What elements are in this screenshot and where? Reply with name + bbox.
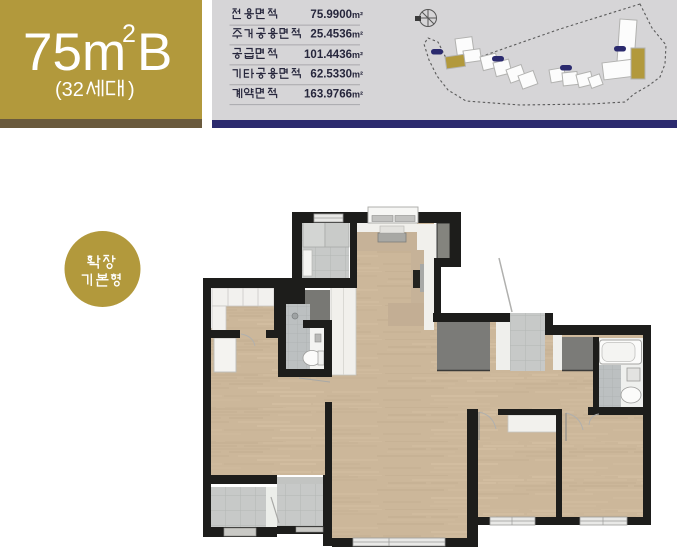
svg-text:75m: 75m: [23, 23, 126, 82]
svg-text:m²: m²: [352, 90, 363, 100]
svg-text:(32: (32: [55, 79, 84, 101]
svg-text:2: 2: [122, 20, 136, 48]
svg-text:163.9766: 163.9766: [304, 89, 352, 101]
svg-text:): ): [128, 79, 135, 101]
svg-text:B: B: [137, 23, 172, 82]
svg-text:62.5330: 62.5330: [310, 69, 352, 81]
svg-text:m²: m²: [352, 10, 363, 20]
svg-text:m²: m²: [352, 30, 363, 40]
svg-text:25.4536: 25.4536: [310, 29, 352, 41]
svg-text:m²: m²: [352, 70, 363, 80]
svg-text:75.9900: 75.9900: [310, 9, 352, 21]
svg-text:101.4436: 101.4436: [304, 49, 352, 61]
svg-text:m²: m²: [352, 50, 363, 60]
